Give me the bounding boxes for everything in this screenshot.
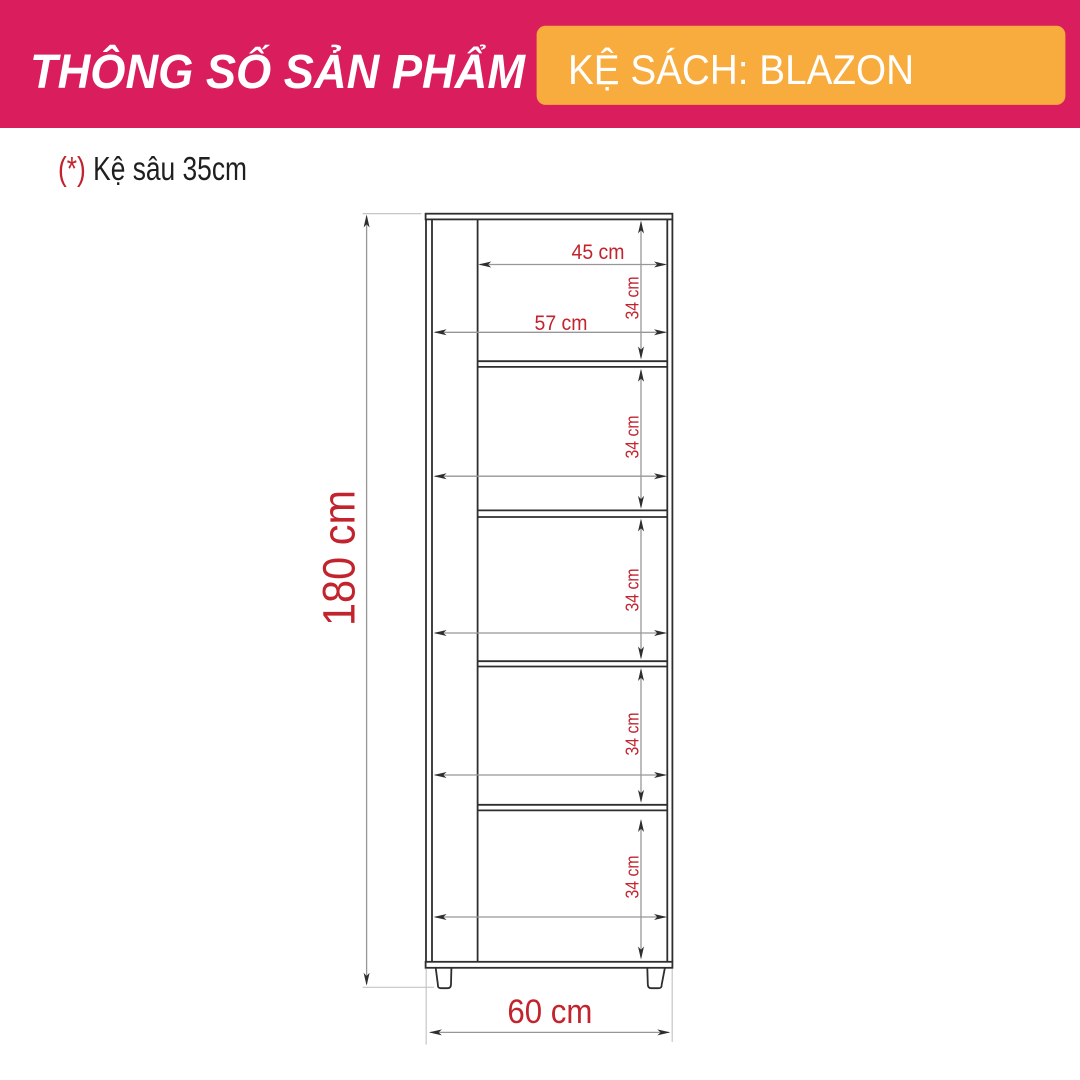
svg-text:(*) Kệ sâu 35cm: (*) Kệ sâu 35cm	[58, 150, 247, 187]
svg-text:57 cm: 57 cm	[535, 311, 588, 335]
svg-text:34 cm: 34 cm	[623, 416, 643, 459]
svg-text:34 cm: 34 cm	[623, 277, 643, 320]
svg-text:180 cm: 180 cm	[313, 490, 364, 626]
svg-text:34 cm: 34 cm	[623, 713, 643, 756]
svg-text:34 cm: 34 cm	[623, 569, 643, 612]
svg-text:45 cm: 45 cm	[572, 240, 625, 264]
svg-text:60 cm: 60 cm	[507, 993, 592, 1031]
svg-text:34 cm: 34 cm	[623, 856, 643, 899]
svg-text:THÔNG SỐ SẢN PHẨM: THÔNG SỐ SẢN PHẨM	[30, 44, 526, 99]
svg-text:KỆ SÁCH: BLAZON: KỆ SÁCH: BLAZON	[568, 46, 914, 93]
